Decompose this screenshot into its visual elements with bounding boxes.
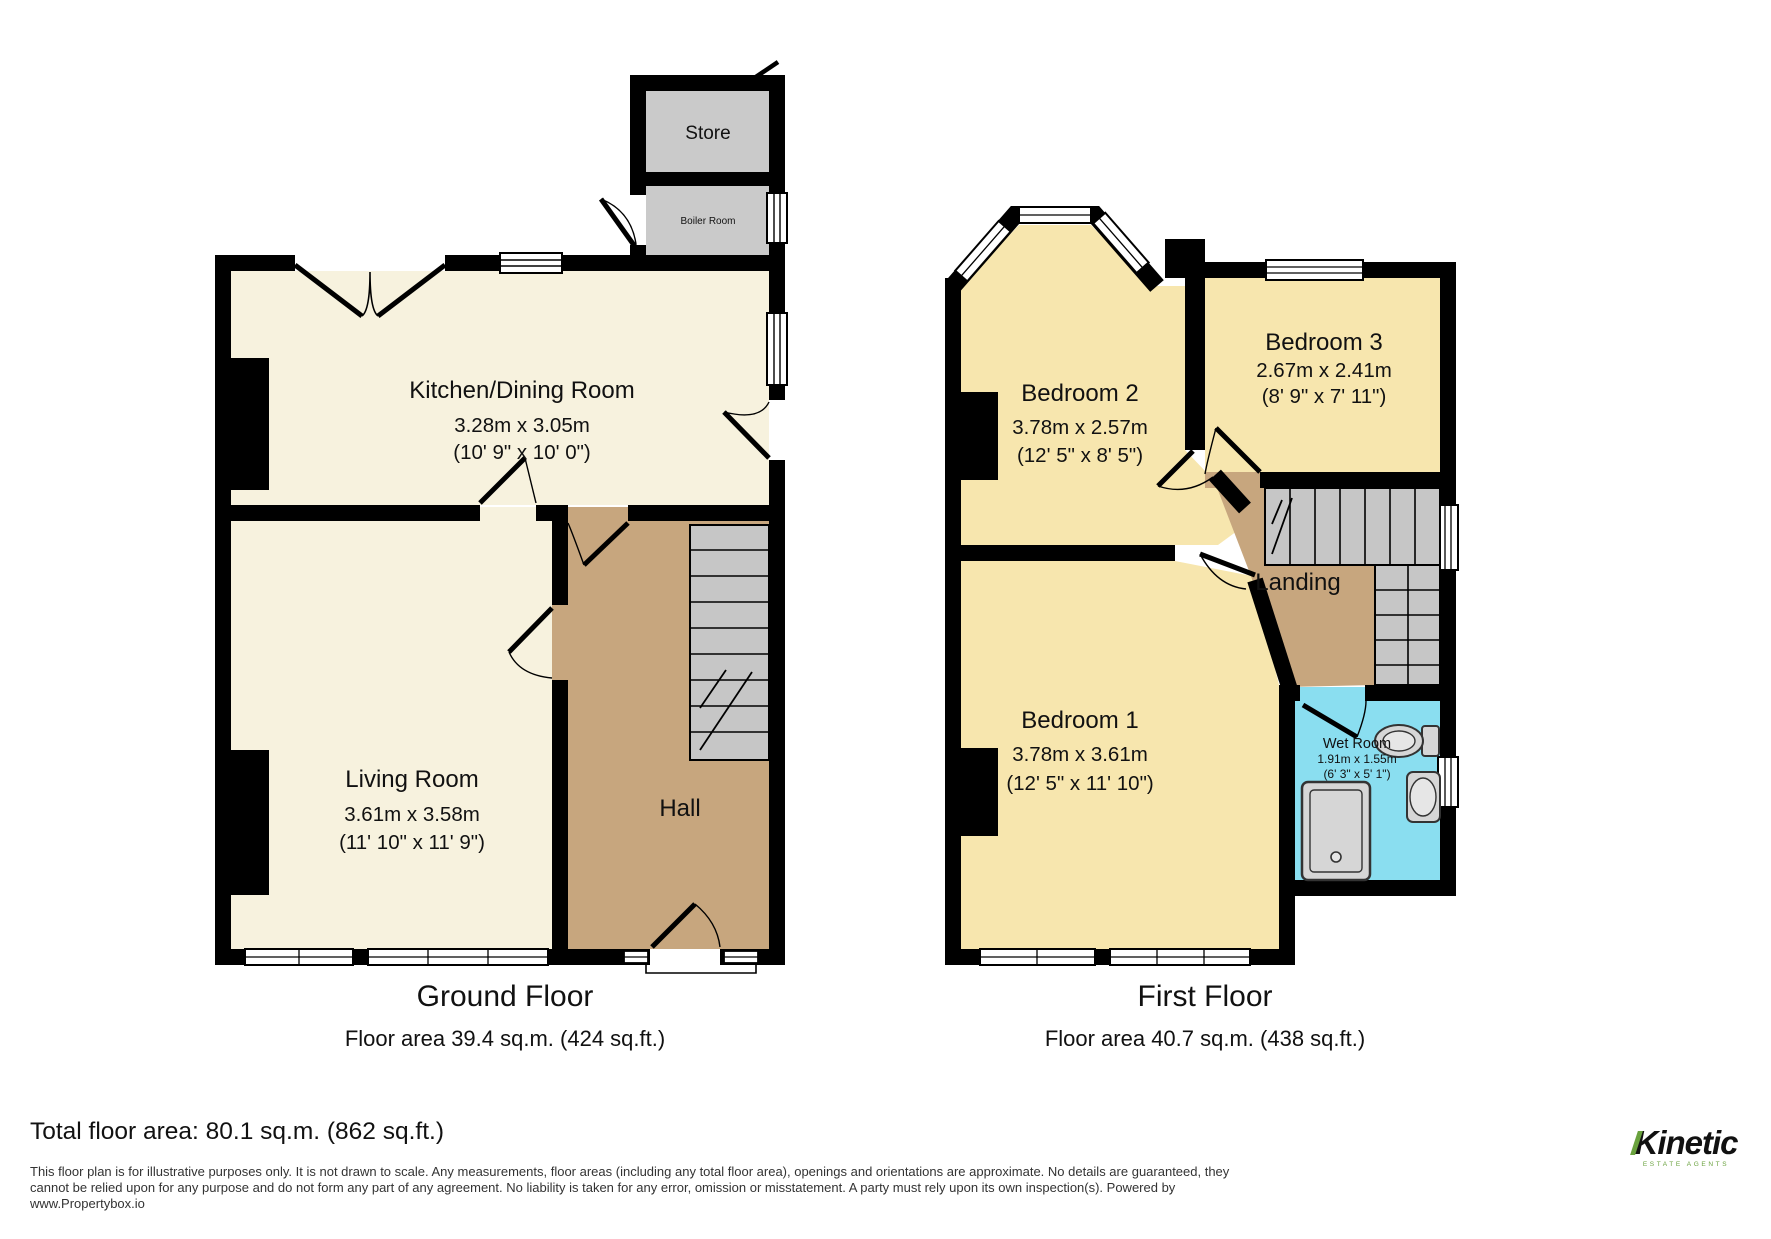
living-dim-imperial: (11' 10" x 11' 9") [339,831,485,854]
boiler-label: Boiler Room [680,216,735,227]
ground-stairs [690,525,769,760]
bedroom1-dim-imperial: (12' 5" x 11' 10") [1006,772,1153,795]
bedroom3-label: Bedroom 3 [1265,329,1382,356]
kinetic-logo-subtext: ESTATE AGENTS [1628,1161,1744,1168]
bedroom3-window [1266,260,1363,280]
first-floor-plan: Bedroom 2 3.78m x 2.57m (12' 5" x 8' 5")… [920,60,1490,975]
living-room [231,521,552,949]
disclaimer-text: This floor plan is for illustrative purp… [30,1164,1400,1212]
kitchen-dim-metric: 3.28m x 3.05m [454,414,590,437]
bay-window-top [1019,207,1091,223]
bedroom2-dim-imperial: (12' 5" x 8' 5") [1017,444,1143,467]
ground-floor-area: Floor area 39.4 sq.m. (424 sq.ft.) [200,1026,810,1052]
kitchen-label: Kitchen/Dining Room [409,377,634,404]
hall-bottom-window-2 [724,951,758,963]
disclaimer-line-2: cannot be relied upon for any purpose an… [30,1180,1400,1196]
kinetic-logo-text: Kinetic [1628,1126,1744,1160]
first-floor-title: First Floor [920,980,1490,1014]
bedroom1-window-1 [980,949,1095,965]
disclaimer-line-1: This floor plan is for illustrative purp… [30,1164,1400,1180]
hall-bottom-window-1 [624,951,648,963]
first-floor-area: Floor area 40.7 sq.m. (438 sq.ft.) [920,1026,1490,1052]
landing-label: Landing [1255,569,1340,596]
living-label: Living Room [345,766,478,793]
boiler-window [767,193,787,243]
kitchen-living-doorway [480,507,536,521]
store-label: Store [685,123,730,144]
hall-label: Hall [659,795,700,822]
wetroom-label: Wet Room [1323,736,1391,752]
bedroom2-dim-metric: 3.78m x 2.57m [1012,416,1148,439]
ground-floor-plan: Store Boiler Room Kitchen/Dining Room 3.… [200,60,810,975]
living-hall-doorway [552,605,568,680]
bedroom1-label: Bedroom 1 [1021,707,1138,734]
bedroom1-chimney-breast [961,748,998,836]
shower-tray-icon [1302,782,1370,880]
front-door-gap [650,949,720,965]
living-dim-metric: 3.61m x 3.58m [344,803,480,826]
bedroom1-dim-metric: 3.78m x 3.61m [1012,743,1148,766]
floorplan-page: Store Boiler Room Kitchen/Dining Room 3.… [0,0,1771,1239]
total-floor-area: Total floor area: 80.1 sq.m. (862 sq.ft.… [30,1118,444,1146]
ground-floor-title: Ground Floor [200,980,810,1014]
bedroom2-chimney-breast [961,392,998,480]
kitchen-back-door-gap [769,400,785,460]
kitchen-hall-doorway [568,507,628,521]
living-bottom-window-1 [245,949,353,965]
disclaimer-line-3: www.Propertybox.io [30,1196,1400,1212]
porch-step [646,965,756,973]
french-door-gap [295,255,445,271]
boiler-door-gap [630,195,646,245]
bedroom3-dim-imperial: (8' 9" x 7' 11") [1262,385,1387,408]
living-bottom-window-2 [368,949,548,965]
bedroom2-label: Bedroom 2 [1021,380,1138,407]
living-chimney-breast [231,750,269,895]
kitchen-chimney-breast [231,358,269,490]
basin-icon [1407,772,1440,822]
kitchen-top-window [500,253,562,273]
wetroom-dim-imperial: (6' 3" x 5' 1") [1323,767,1390,781]
kitchen-dim-imperial: (10' 9" x 10' 0") [453,441,590,464]
kinetic-logo: Kinetic ESTATE AGENTS [1628,1126,1744,1168]
bedroom3-dim-metric: 2.67m x 2.41m [1256,359,1392,382]
wetroom-doorway [1300,687,1365,701]
kitchen-side-window [767,313,787,385]
wetroom-dim-metric: 1.91m x 1.55m [1317,752,1396,766]
bedroom1-window-2 [1110,949,1250,965]
